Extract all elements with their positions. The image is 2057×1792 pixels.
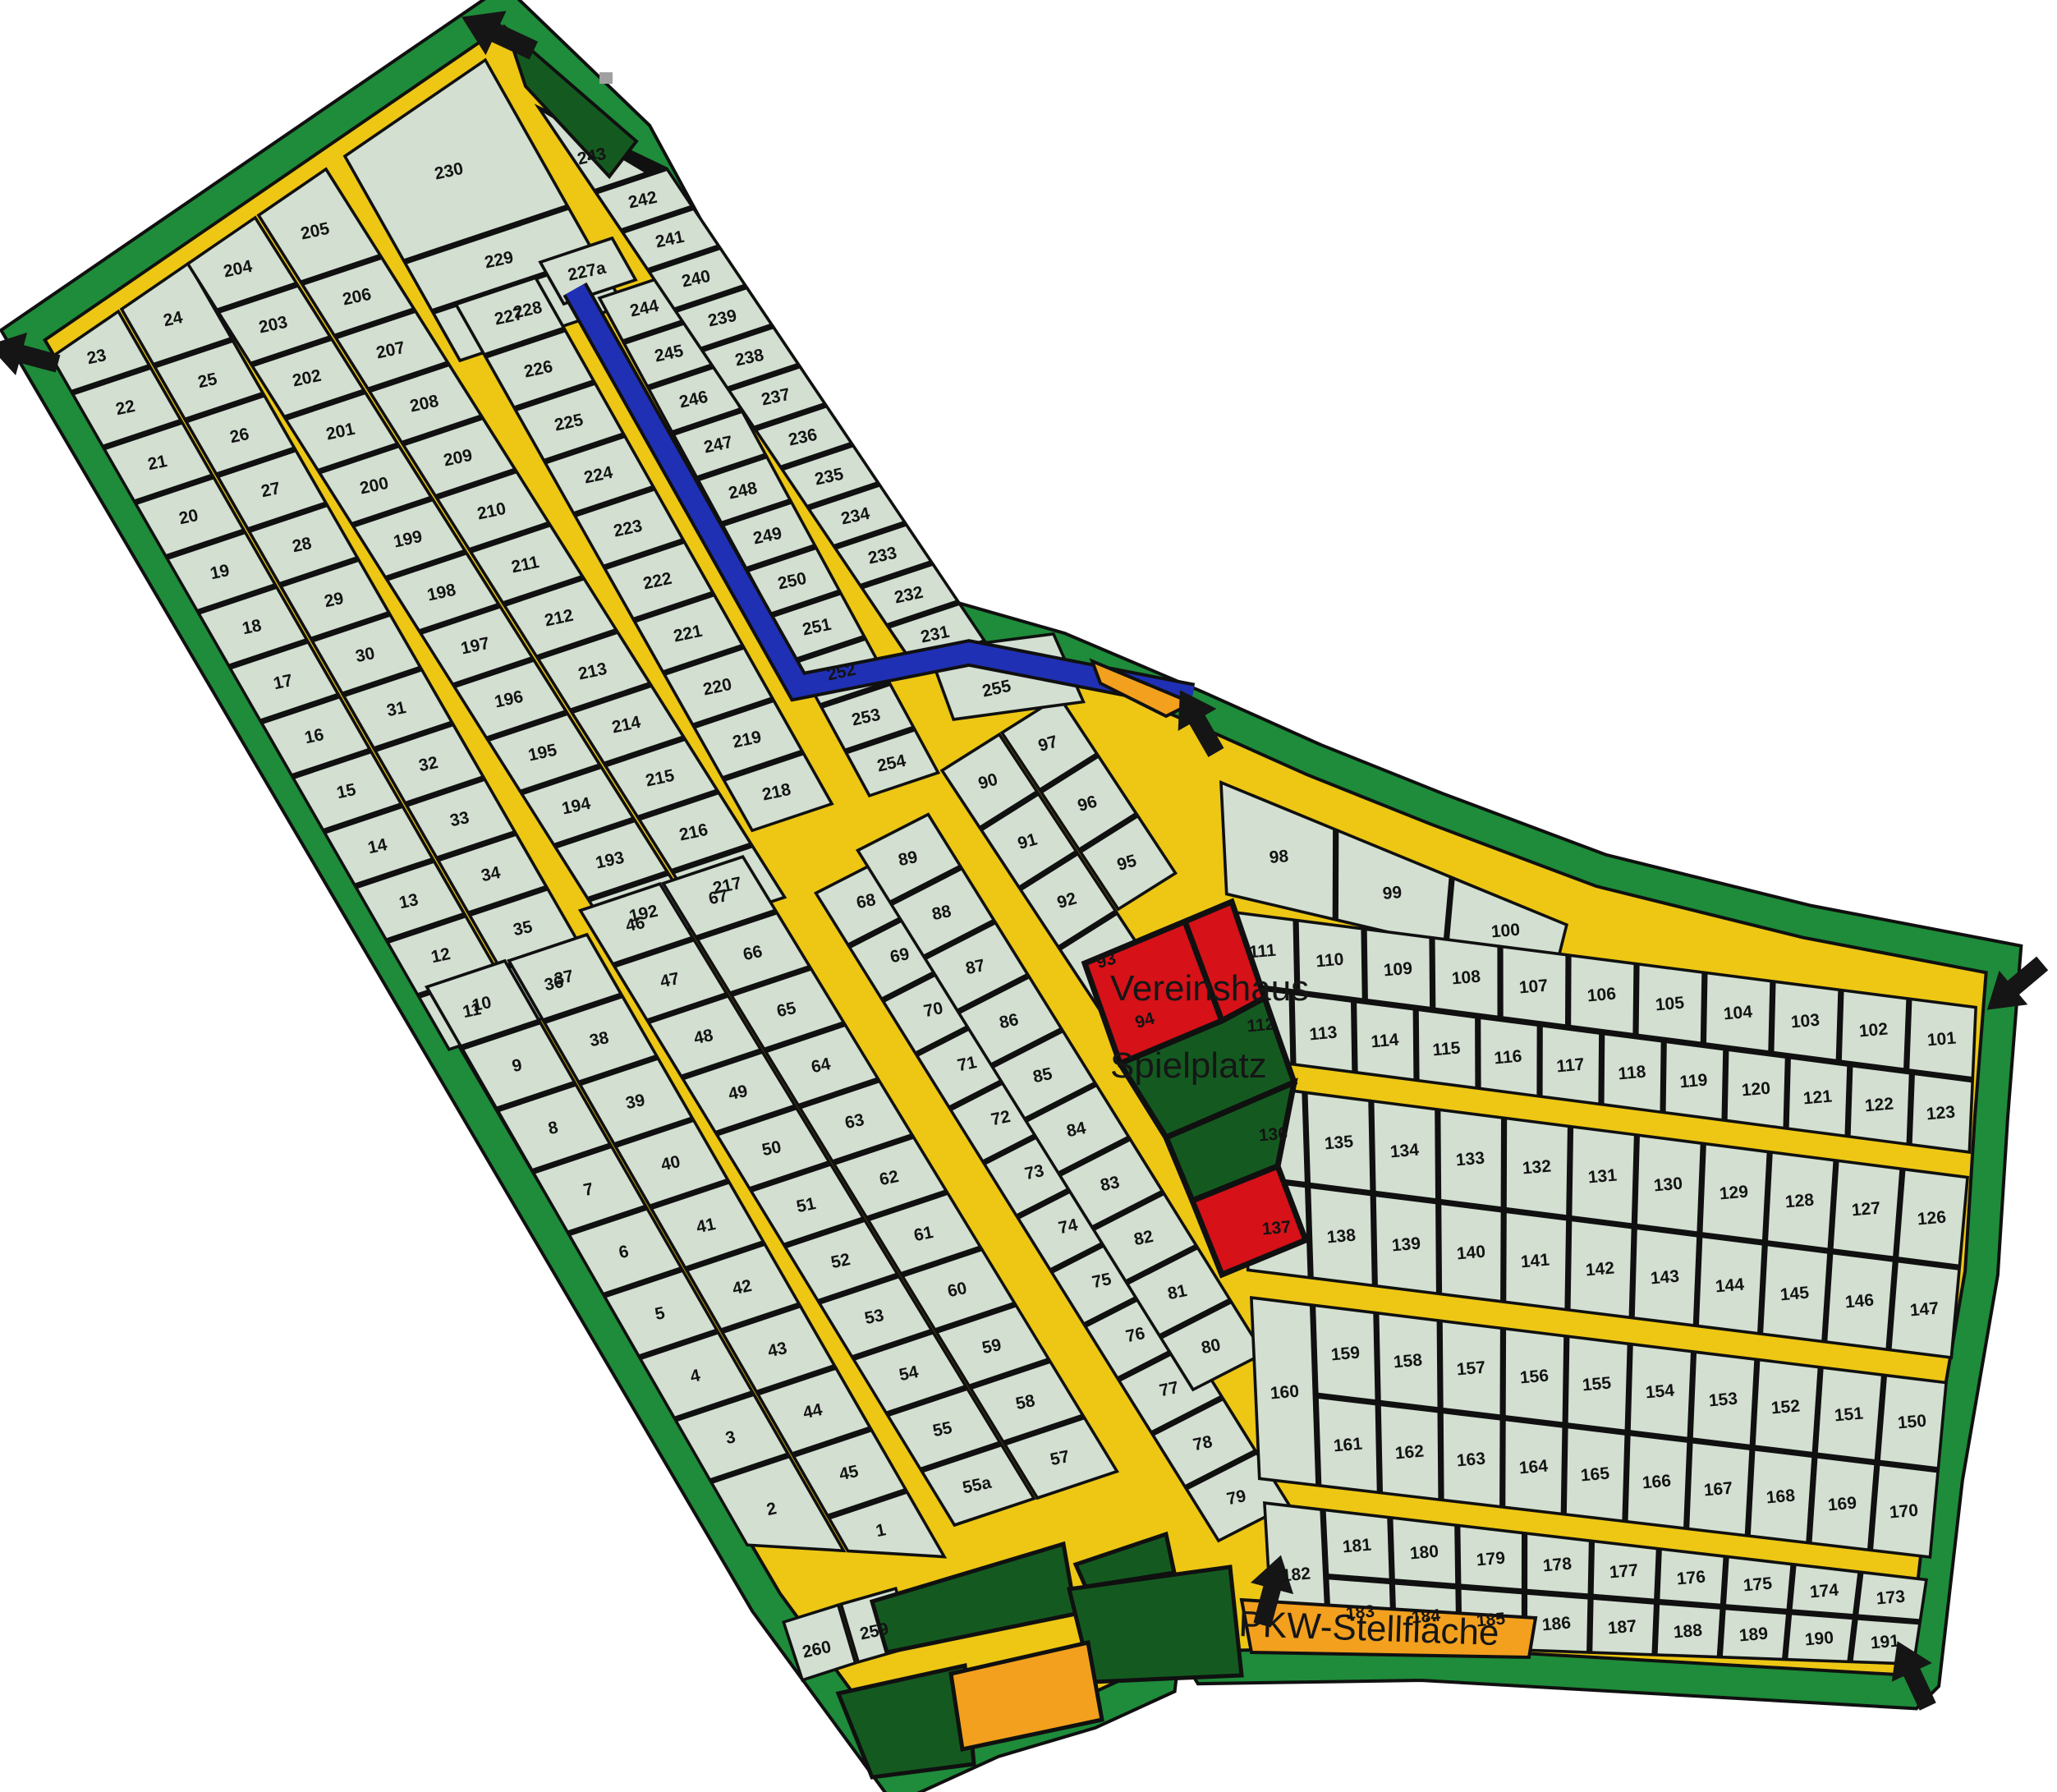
svg-text:79: 79 [1225, 1486, 1248, 1509]
svg-text:17: 17 [272, 671, 295, 693]
svg-text:123: 123 [1926, 1103, 1956, 1124]
svg-text:70: 70 [922, 999, 945, 1021]
svg-text:26: 26 [228, 425, 251, 447]
svg-text:150: 150 [1897, 1412, 1927, 1433]
svg-text:118: 118 [1618, 1063, 1647, 1084]
svg-text:103: 103 [1790, 1011, 1821, 1032]
svg-text:173: 173 [1876, 1588, 1906, 1609]
svg-text:16: 16 [303, 725, 326, 747]
svg-text:136: 136 [1258, 1124, 1288, 1146]
svg-text:142: 142 [1585, 1259, 1615, 1280]
svg-text:186: 186 [1541, 1614, 1572, 1635]
svg-text:83: 83 [1099, 1173, 1122, 1195]
svg-text:52: 52 [829, 1250, 852, 1272]
svg-text:62: 62 [878, 1167, 901, 1189]
svg-text:164: 164 [1518, 1457, 1549, 1478]
svg-text:120: 120 [1741, 1079, 1771, 1100]
svg-text:177: 177 [1609, 1561, 1639, 1583]
svg-text:89: 89 [897, 848, 920, 870]
svg-text:53: 53 [863, 1306, 886, 1328]
svg-text:66: 66 [742, 942, 764, 964]
svg-text:184: 184 [1411, 1606, 1441, 1628]
svg-text:130: 130 [1653, 1174, 1683, 1196]
svg-text:23: 23 [85, 346, 108, 368]
svg-text:175: 175 [1742, 1574, 1773, 1596]
svg-text:139: 139 [1391, 1234, 1421, 1256]
svg-text:67: 67 [707, 886, 730, 908]
svg-text:133: 133 [1455, 1149, 1485, 1170]
svg-text:143: 143 [1650, 1267, 1680, 1289]
svg-text:50: 50 [760, 1137, 783, 1160]
svg-text:183: 183 [1345, 1602, 1375, 1624]
svg-text:19: 19 [209, 561, 232, 583]
svg-text:180: 180 [1409, 1542, 1439, 1564]
svg-text:135: 135 [1324, 1133, 1354, 1154]
svg-text:47: 47 [659, 969, 682, 991]
svg-text:30: 30 [354, 644, 377, 666]
svg-text:12: 12 [429, 944, 452, 967]
svg-text:29: 29 [323, 589, 346, 611]
svg-text:147: 147 [1909, 1299, 1940, 1321]
svg-text:190: 190 [1804, 1629, 1834, 1650]
svg-text:105: 105 [1655, 994, 1685, 1015]
svg-text:187: 187 [1607, 1617, 1637, 1638]
svg-text:42: 42 [731, 1276, 754, 1298]
svg-text:72: 72 [989, 1107, 1012, 1129]
svg-text:116: 116 [1494, 1047, 1523, 1068]
svg-text:159: 159 [1330, 1344, 1361, 1365]
svg-text:181: 181 [1342, 1536, 1372, 1557]
svg-text:111: 111 [1248, 941, 1277, 963]
svg-text:115: 115 [1432, 1039, 1462, 1060]
svg-text:167: 167 [1703, 1479, 1733, 1500]
svg-text:165: 165 [1580, 1464, 1610, 1486]
svg-text:37: 37 [553, 967, 576, 989]
svg-text:20: 20 [177, 506, 200, 528]
svg-text:76: 76 [1124, 1324, 1147, 1346]
svg-text:132: 132 [1522, 1157, 1552, 1179]
svg-text:179: 179 [1476, 1549, 1506, 1570]
svg-text:154: 154 [1645, 1381, 1675, 1403]
svg-text:46: 46 [624, 913, 647, 935]
svg-text:174: 174 [1809, 1581, 1839, 1602]
svg-text:98: 98 [1269, 847, 1290, 867]
svg-text:106: 106 [1586, 985, 1617, 1006]
svg-text:185: 185 [1476, 1610, 1506, 1631]
svg-text:168: 168 [1765, 1486, 1796, 1508]
svg-text:107: 107 [1518, 976, 1549, 998]
svg-text:182: 182 [1281, 1565, 1311, 1586]
svg-text:138: 138 [1326, 1226, 1357, 1248]
svg-text:39: 39 [624, 1091, 647, 1113]
svg-text:145: 145 [1779, 1284, 1810, 1305]
svg-text:146: 146 [1844, 1291, 1875, 1312]
svg-text:144: 144 [1715, 1275, 1745, 1297]
svg-text:189: 189 [1738, 1624, 1769, 1646]
svg-text:101: 101 [1926, 1029, 1957, 1050]
svg-text:13: 13 [397, 890, 420, 912]
svg-text:109: 109 [1383, 959, 1413, 981]
svg-text:152: 152 [1770, 1397, 1801, 1418]
svg-text:191: 191 [1870, 1632, 1900, 1653]
svg-text:140: 140 [1456, 1243, 1486, 1264]
svg-text:163: 163 [1456, 1450, 1486, 1471]
svg-text:169: 169 [1827, 1494, 1857, 1515]
svg-text:22: 22 [114, 397, 137, 419]
svg-text:112: 112 [1247, 1015, 1276, 1036]
svg-text:162: 162 [1394, 1442, 1425, 1463]
svg-text:153: 153 [1708, 1390, 1738, 1411]
svg-text:82: 82 [1132, 1227, 1155, 1249]
svg-text:Spielplatz: Spielplatz [1110, 1045, 1267, 1086]
svg-text:114: 114 [1371, 1031, 1400, 1052]
svg-text:63: 63 [843, 1110, 866, 1133]
svg-text:119: 119 [1679, 1071, 1709, 1092]
svg-text:69: 69 [888, 944, 911, 967]
svg-text:33: 33 [448, 808, 471, 830]
svg-text:134: 134 [1389, 1141, 1420, 1162]
svg-text:161: 161 [1333, 1435, 1363, 1456]
svg-text:77: 77 [1158, 1378, 1181, 1400]
svg-text:170: 170 [1889, 1501, 1919, 1523]
svg-text:176: 176 [1676, 1568, 1706, 1589]
svg-text:128: 128 [1784, 1191, 1815, 1212]
svg-text:49: 49 [727, 1082, 750, 1104]
svg-text:59: 59 [980, 1335, 1003, 1358]
svg-text:27: 27 [259, 479, 282, 501]
svg-text:156: 156 [1519, 1367, 1550, 1388]
svg-text:57: 57 [1049, 1447, 1072, 1469]
svg-text:60: 60 [946, 1279, 969, 1301]
svg-text:32: 32 [417, 753, 440, 775]
svg-text:113: 113 [1309, 1023, 1338, 1045]
svg-text:73: 73 [1023, 1161, 1046, 1183]
svg-text:188: 188 [1673, 1621, 1703, 1643]
svg-text:137: 137 [1261, 1218, 1292, 1239]
svg-text:117: 117 [1556, 1055, 1586, 1077]
svg-text:80: 80 [1200, 1335, 1223, 1358]
svg-text:151: 151 [1834, 1404, 1864, 1426]
svg-text:43: 43 [766, 1339, 789, 1361]
svg-text:127: 127 [1851, 1199, 1881, 1220]
svg-text:166: 166 [1641, 1472, 1672, 1493]
svg-text:155: 155 [1582, 1374, 1612, 1395]
svg-text:129: 129 [1719, 1183, 1749, 1204]
svg-text:126: 126 [1917, 1208, 1947, 1229]
svg-text:87: 87 [964, 956, 987, 978]
svg-text:178: 178 [1542, 1555, 1573, 1576]
svg-text:108: 108 [1451, 967, 1481, 989]
svg-text:86: 86 [998, 1010, 1021, 1032]
svg-text:121: 121 [1802, 1087, 1833, 1109]
svg-text:10: 10 [471, 993, 494, 1015]
svg-text:157: 157 [1456, 1358, 1486, 1380]
svg-text:160: 160 [1270, 1382, 1300, 1404]
svg-text:110: 110 [1315, 950, 1345, 972]
svg-text:100: 100 [1490, 921, 1521, 942]
svg-text:Vereinshaus: Vereinshaus [1110, 968, 1309, 1009]
svg-text:158: 158 [1393, 1351, 1423, 1372]
svg-text:122: 122 [1864, 1095, 1894, 1116]
svg-text:131: 131 [1587, 1166, 1618, 1188]
svg-text:99: 99 [1382, 883, 1403, 903]
svg-text:141: 141 [1520, 1251, 1550, 1272]
svg-text:40: 40 [659, 1152, 682, 1174]
svg-text:104: 104 [1723, 1003, 1753, 1024]
svg-text:102: 102 [1858, 1020, 1889, 1041]
